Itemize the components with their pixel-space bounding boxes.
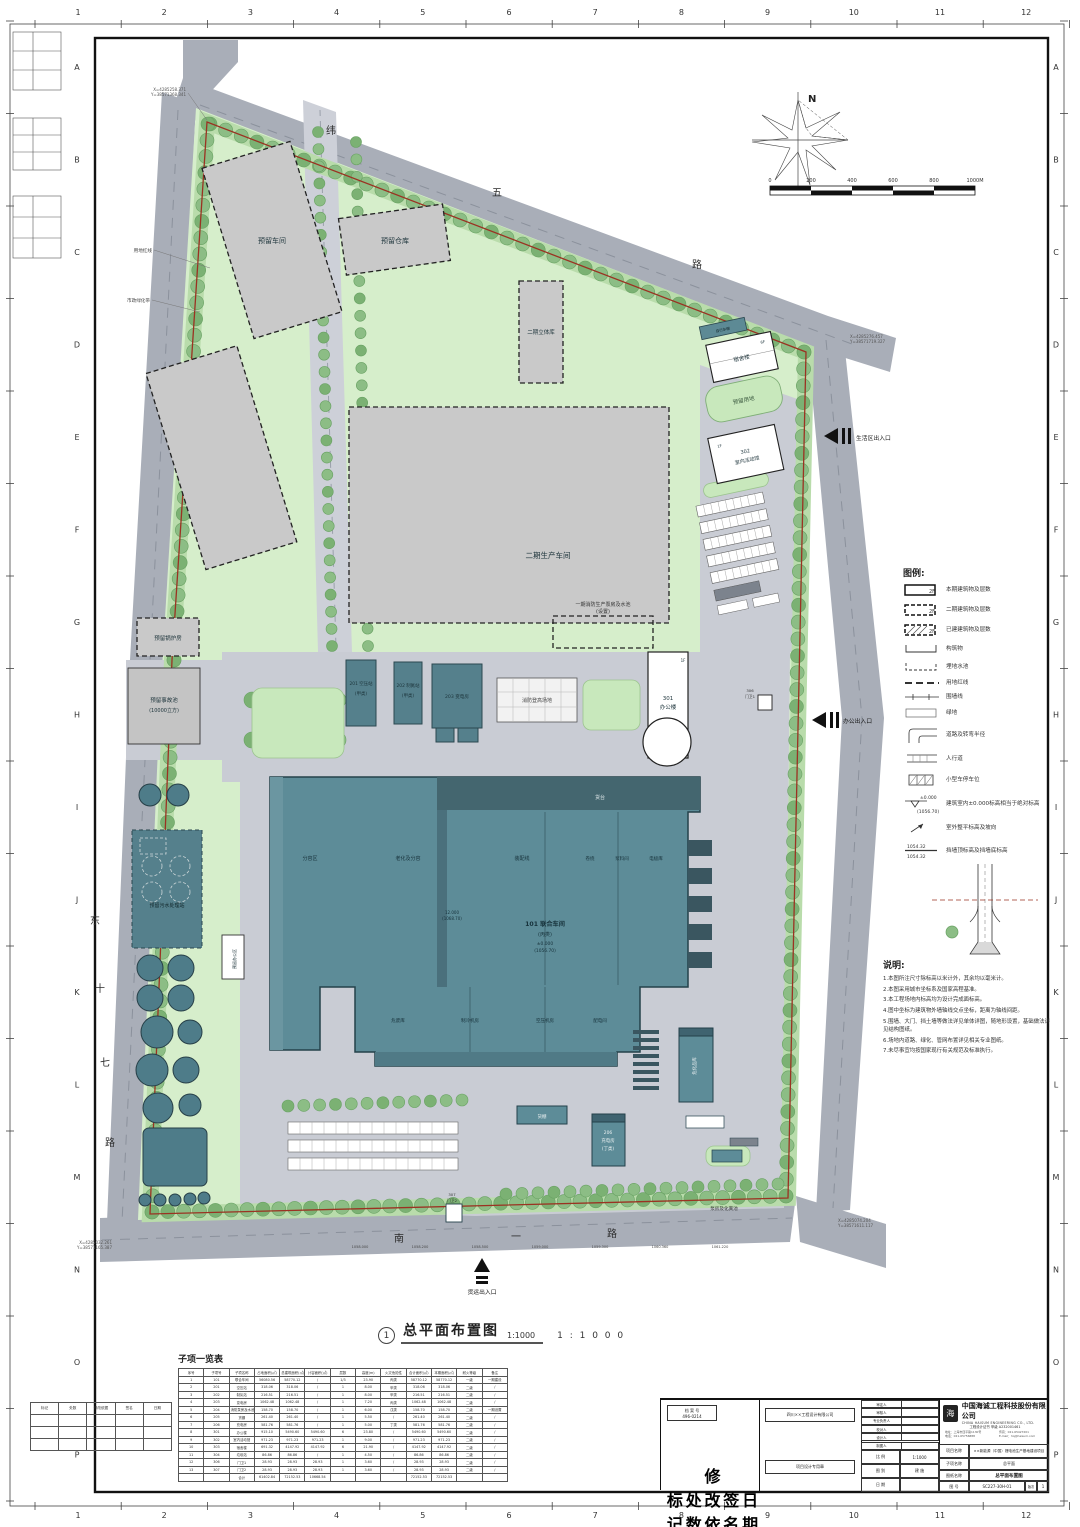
svg-text:M: M — [1053, 1173, 1060, 1182]
revision-table: 标记处数修改依据签名日期 — [30, 1402, 172, 1451]
subitem-row: 11304垃圾站86.8686.86/14.50/86.8686.86二级/ — [179, 1451, 508, 1459]
entrance-office — [812, 712, 839, 728]
svg-text:202 制氮站: 202 制氮站 — [397, 682, 421, 689]
entrance-freight — [474, 1258, 490, 1284]
legend-title: 图例: — [903, 566, 1055, 579]
subitem-row: 4203变电房1062.481062.48/17.20丙类1062.481062… — [179, 1399, 508, 1407]
notes-panel: 说明: 1.本图所注尺寸除标高以米计外，其余均以毫米计。2.本图采用城市坐标系及… — [883, 958, 1053, 1058]
svg-text:C: C — [74, 248, 80, 257]
legend-item: 绿地 — [903, 707, 1055, 719]
svg-text:O: O — [1053, 1358, 1059, 1367]
subitem-table-body: 1101联合车间56080.5658770.12/1/323.90丙类58770… — [179, 1376, 508, 1481]
subitem-row: 合计61402.8472152.5310668.5472152.5372152.… — [179, 1474, 508, 1482]
svg-text:(甲类): (甲类) — [402, 692, 414, 699]
svg-text:E: E — [1053, 433, 1058, 442]
subitem-row: 7206充电房581.76581.76/15.00丁类581.76581.76二… — [179, 1421, 508, 1429]
svg-text:货棚: 货棚 — [538, 1113, 547, 1120]
svg-text:M: M — [74, 1173, 81, 1182]
sign-row: 制图人 — [861, 1442, 939, 1450]
company-logo: 海 — [943, 1405, 958, 1422]
svg-text:门卫1: 门卫1 — [745, 694, 756, 699]
svg-text:1059.000: 1059.000 — [532, 1245, 549, 1249]
svg-text:Y=38571719.327: Y=38571719.327 — [849, 339, 886, 344]
svg-text:307: 307 — [448, 1192, 456, 1197]
svg-text:危化品库: 危化品库 — [691, 1057, 698, 1075]
subitem-table-panel: 子项一览表 序号子项号子项名称占地面积(㎡)总建筑面积(㎡)计容面积(㎡)层数高… — [178, 1352, 508, 1482]
legend-item: 2F 本期建筑物及层数 — [903, 583, 1055, 597]
svg-text:1054.32: 1054.32 — [907, 844, 926, 850]
svg-text:路: 路 — [607, 1227, 617, 1240]
svg-text:301: 301 — [663, 696, 674, 702]
svg-text:L: L — [75, 1081, 80, 1090]
svg-text:Y=38571611.117: Y=38571611.117 — [837, 1223, 874, 1228]
svg-text:预留事故池: 预留事故池 — [150, 696, 178, 704]
svg-text:2: 2 — [162, 8, 167, 17]
svg-text:(1056.70): (1056.70) — [534, 948, 556, 954]
subitem-row: 2201空压站318.06318.06/18.00甲类318.06318.06二… — [179, 1384, 508, 1392]
sewage-station — [132, 830, 202, 948]
sign-row: 审核人 — [861, 1408, 939, 1416]
svg-text:南: 南 — [394, 1232, 404, 1245]
svg-text:Y=38571368.341: Y=38571368.341 — [150, 92, 187, 97]
svg-text:市政绿化带: 市政绿化带 — [127, 297, 150, 304]
svg-text:12.000: 12.000 — [445, 910, 459, 915]
subitem-row: 10303宿舍楼691.324147.924147.92621.90/4147.… — [179, 1444, 508, 1452]
svg-text:(1068.70): (1068.70) — [442, 916, 462, 921]
subitem-row: 6205货棚261.40261.40/15.50/261.40261.40二级/ — [179, 1414, 508, 1422]
legend-item: ±0.000(1056.70) 建筑室内±0.000标高相当于绝对标高 — [903, 793, 1055, 815]
contact-col1: 地址：上海市四平路1130号电话：021-65756888 — [945, 1430, 997, 1439]
svg-text:206: 206 — [604, 1130, 613, 1136]
svg-text:B: B — [1053, 156, 1059, 165]
svg-text:1: 1 — [75, 1511, 80, 1520]
legend-item: 用地红线 — [903, 679, 1055, 687]
svg-text:Y=38571165.387: Y=38571165.387 — [76, 1245, 113, 1250]
dwgname-label: 图纸名称 — [939, 1470, 969, 1481]
north-label: N — [808, 94, 816, 105]
svg-text:(丙类): (丙类) — [538, 931, 552, 938]
svg-text:门卫2: 门卫2 — [447, 1198, 458, 1203]
svg-text:6: 6 — [506, 1511, 511, 1520]
gate-detail-diagram — [930, 862, 1040, 957]
svg-text:11: 11 — [935, 1511, 945, 1520]
svg-text:1000M: 1000M — [966, 178, 983, 184]
drawing-title-row: 1 总平面布置图 1:1000 1 : 1 0 0 0 — [378, 1320, 625, 1344]
svg-text:(甲类): (甲类) — [355, 690, 367, 697]
svg-text:货台: 货台 — [595, 794, 605, 801]
svg-text:(丁类): (丁类) — [602, 1145, 614, 1152]
svg-text:201 空压站: 201 空压站 — [350, 680, 374, 687]
svg-text:路: 路 — [692, 258, 702, 271]
svg-text:2F: 2F — [929, 629, 935, 635]
svg-text:货运出入口: 货运出入口 — [468, 1288, 497, 1296]
type-label: 图 别 — [861, 1464, 900, 1478]
svg-text:4: 4 — [334, 8, 339, 17]
svg-text:1F: 1F — [681, 658, 687, 663]
svg-text:1058.000: 1058.000 — [352, 1245, 369, 1249]
note-item: 6.场地内道路、绿化、管网布置详见相关专业图纸。 — [883, 1037, 1053, 1046]
svg-text:F: F — [75, 526, 80, 535]
svg-text:卷绕: 卷绕 — [586, 855, 595, 862]
contact-col2: 传真：021-65427201E-mail：hq@haisum.com — [999, 1430, 1049, 1439]
svg-text:A: A — [74, 63, 80, 72]
svg-text:充电房: 充电房 — [601, 1137, 615, 1144]
svg-text:11: 11 — [935, 8, 945, 17]
svg-text:1058.500: 1058.500 — [472, 1245, 489, 1249]
svg-text:1058.200: 1058.200 — [412, 1245, 429, 1249]
cert-line: 工程设计证书 甲级 A232001461 — [943, 1424, 1047, 1429]
svg-text:装配线: 装配线 — [514, 855, 529, 862]
notes-title: 说明: — [883, 958, 1053, 971]
legend-item: 道路及转弯半径 — [903, 725, 1055, 745]
svg-text:K: K — [1053, 988, 1059, 997]
drawing-sheet: 112233445566778899101011111212AABBCCDDEE… — [0, 0, 1080, 1527]
svg-text:0: 0 — [768, 178, 771, 184]
svg-text:办公楼: 办公楼 — [660, 703, 677, 711]
subitem-table: 序号子项号子项名称占地面积(㎡)总建筑面积(㎡)计容面积(㎡)层数高度(m)火灾… — [178, 1368, 508, 1482]
svg-text:2: 2 — [162, 1511, 167, 1520]
title-block: 档 案 号496-0214 标记处数修改依据签名日期 四川××工程设计有限公司 … — [660, 1398, 1048, 1490]
legend-panel: 图例: 2F 本期建筑物及层数 2F 二期建筑物及层数 2F 已建建筑物及层数 … — [903, 566, 1055, 867]
type-value: 建 施 — [900, 1464, 939, 1478]
notes-list: 1.本图所注尺寸除标高以米计外，其余均以毫米计。2.本图采用城市坐标系及国家高程… — [883, 975, 1053, 1056]
svg-text:E: E — [74, 433, 79, 442]
svg-text:J: J — [75, 896, 78, 905]
design-stamp-1: 四川××工程设计有限公司 — [765, 1408, 855, 1422]
svg-text:7: 7 — [593, 1511, 598, 1520]
svg-text:6: 6 — [506, 8, 511, 17]
svg-text:1: 1 — [75, 8, 80, 17]
svg-text:预留办公区: 预留办公区 — [231, 949, 237, 969]
svg-text:配电间: 配电间 — [593, 1017, 607, 1024]
svg-text:二期立体库: 二期立体库 — [527, 328, 555, 336]
legend-item: 埋地水池 — [903, 661, 1055, 673]
subitem-row: 5204消防泵房及水池158.70158.70/16.00戊类158.70158… — [179, 1406, 508, 1414]
svg-text:400: 400 — [847, 178, 857, 184]
svg-text:K: K — [74, 988, 80, 997]
svg-text:O: O — [74, 1358, 80, 1367]
drawing-scale-small: 1:1000 — [507, 1331, 535, 1340]
project-label: 项目名称 — [939, 1444, 969, 1458]
svg-text:8: 8 — [679, 8, 684, 17]
svg-text:预留污水处理站: 预留污水处理站 — [149, 902, 184, 909]
accident-pool — [128, 668, 200, 744]
svg-text:老化及分容: 老化及分容 — [395, 855, 420, 862]
svg-text:7: 7 — [593, 8, 598, 17]
archive-no-box: 档 案 号496-0214 — [667, 1405, 717, 1421]
subitem-row: 1101联合车间56080.5658770.12/1/323.90丙类58770… — [179, 1376, 508, 1384]
dwgno-value: SC227-30H-01 — [969, 1481, 1025, 1492]
svg-text:12: 12 — [1021, 1511, 1031, 1520]
sign-row: 校对人 — [861, 1425, 939, 1433]
subitem-row: 13307门卫228.9328.9328.9313.60/28.9328.93二… — [179, 1466, 508, 1474]
svg-text:±0.000: ±0.000 — [537, 941, 553, 947]
svg-text:L: L — [1054, 1081, 1059, 1090]
svg-text:五: 五 — [492, 188, 502, 199]
subproject-label: 子项名称 — [939, 1458, 969, 1470]
svg-text:分容区: 分容区 — [302, 855, 317, 862]
svg-text:203 变电房: 203 变电房 — [445, 693, 469, 700]
dwgno-label: 图 号 — [939, 1481, 969, 1492]
subitem-row: 8301办公楼915.105490.605490.60623.80/5490.6… — [179, 1429, 508, 1437]
svg-text:东: 东 — [90, 914, 100, 927]
drawing-scale-large: 1 : 1 0 0 0 — [557, 1331, 625, 1344]
svg-text:101 联合车间: 101 联合车间 — [525, 920, 565, 928]
svg-text:12: 12 — [1021, 8, 1031, 17]
svg-text:P: P — [1054, 1451, 1059, 1460]
note-item: 7.未尽事宜均按国家现行有关规范及标准执行。 — [883, 1047, 1053, 1056]
svg-text:2F: 2F — [929, 589, 935, 595]
signature-rows: 审定人审核人专业负责人校对人设计人制图人 — [861, 1400, 939, 1450]
svg-text:制冷机房: 制冷机房 — [461, 1017, 479, 1024]
margin-signature-boxes — [13, 32, 61, 258]
svg-text:D: D — [74, 341, 80, 350]
svg-text:(10000立方): (10000立方) — [149, 707, 179, 714]
svg-text:5: 5 — [420, 8, 425, 17]
svg-text:9: 9 — [765, 8, 770, 17]
svg-text:±0.000: ±0.000 — [920, 795, 937, 801]
svg-text:10: 10 — [849, 8, 859, 17]
sign-row: 审定人 — [861, 1400, 939, 1408]
svg-text:4: 4 — [334, 1511, 339, 1520]
svg-text:纬: 纬 — [326, 124, 336, 137]
svg-text:(1056.70): (1056.70) — [917, 809, 939, 815]
svg-text:J: J — [1054, 896, 1057, 905]
svg-text:P: P — [75, 1451, 80, 1460]
legend-item: 2F 二期建筑物及层数 — [903, 603, 1055, 617]
svg-text:9: 9 — [765, 1511, 770, 1520]
svg-text:1061.220: 1061.220 — [712, 1245, 729, 1249]
svg-text:306: 306 — [746, 688, 754, 693]
svg-text:1054.32: 1054.32 — [907, 854, 926, 860]
svg-text:浆料间: 浆料间 — [615, 855, 629, 862]
svg-text:200: 200 — [806, 178, 816, 184]
scale-value: 1:1000 — [900, 1450, 939, 1464]
svg-text:3: 3 — [248, 8, 253, 17]
north-wind-rose — [752, 92, 848, 188]
svg-text:I: I — [1055, 803, 1057, 812]
subitem-table-title: 子项一览表 — [178, 1352, 508, 1365]
svg-text:2F: 2F — [929, 609, 935, 615]
svg-text:N: N — [74, 1266, 80, 1275]
svg-text:3: 3 — [248, 1511, 253, 1520]
note-item: 3.本工程场地内标高均为设计完成面标高。 — [883, 996, 1053, 1005]
dwgname-value: 总平面布置图 — [969, 1470, 1049, 1481]
note-item: 4.图中坐标为建筑物外墙轴线交点坐标，距离为轴线间距。 — [883, 1007, 1053, 1016]
company-header: 海 中国海诚工程科技股份有限公司 CHINA HAISUM ENGINEERIN… — [943, 1403, 1047, 1423]
legend-item: 小型车停车位 — [903, 773, 1055, 787]
legend-item: 围墙线 — [903, 693, 1055, 701]
svg-text:N: N — [1053, 1266, 1059, 1275]
svg-text:办公出入口: 办公出入口 — [843, 717, 872, 725]
svg-text:预留仓库: 预留仓库 — [381, 236, 409, 245]
legend-item: 人行道 — [903, 751, 1055, 767]
svg-text:(设置): (设置) — [596, 608, 610, 615]
svg-text:G: G — [74, 618, 80, 627]
subproject-value: 总平面 — [969, 1458, 1049, 1470]
project-value: ××新能源（中国）锂电池生产基地建设项目 — [969, 1444, 1049, 1458]
svg-text:1060.360: 1060.360 — [652, 1245, 669, 1249]
subitem-row: 3202制氮站216.51216.51/18.00甲类216.51216.51二… — [179, 1391, 508, 1399]
svg-text:一: 一 — [511, 1232, 521, 1243]
legend-item: 1054.321054.32 挡墙顶标高及挡墙底标高 — [903, 841, 1055, 861]
svg-text:电极库: 电极库 — [649, 855, 663, 862]
scale-bar: 02004006008001000M — [768, 178, 983, 195]
svg-text:5: 5 — [420, 1511, 425, 1520]
svg-text:1059.300: 1059.300 — [592, 1245, 609, 1249]
subitem-row: 9302室内活动馆971.23971.23971.2319.00/971.239… — [179, 1436, 508, 1444]
titleblock-minigrid: 标记处数修改依据签名日期 — [665, 1462, 760, 1527]
svg-text:路: 路 — [105, 1136, 115, 1149]
legend-item: 室外整平标高及坡向 — [903, 821, 1055, 835]
rev-value: 1 — [1037, 1481, 1049, 1492]
detail-number-bubble: 1 — [378, 1327, 395, 1344]
svg-text:I: I — [76, 803, 78, 812]
svg-text:空压机房: 空压机房 — [536, 1017, 554, 1024]
date-label: 日 期 — [861, 1478, 900, 1492]
rev-label: 版次 — [1025, 1481, 1037, 1492]
company-name-cn: 中国海诚工程科技股份有限公司 — [962, 1401, 1047, 1421]
svg-text:F: F — [1054, 526, 1059, 535]
subitem-row: 12306门卫128.9328.9328.9313.60/28.9328.93二… — [179, 1459, 508, 1467]
svg-text:七: 七 — [100, 1057, 110, 1069]
svg-text:二期生产车间: 二期生产车间 — [526, 550, 571, 560]
note-item: 1.本图所注尺寸除标高以米计外，其余均以毫米计。 — [883, 975, 1053, 984]
svg-text:消防登高场地: 消防登高场地 — [522, 697, 552, 704]
svg-text:D: D — [1053, 341, 1059, 350]
legend-item: 2F 已建建筑物及层数 — [903, 623, 1055, 637]
svg-text:10: 10 — [849, 1511, 859, 1520]
svg-text:B: B — [74, 156, 80, 165]
svg-text:一期消防生产泵房及水池: 一期消防生产泵房及水池 — [575, 601, 630, 608]
design-stamp-2: 项目设计专用章 — [765, 1460, 855, 1474]
svg-text:C: C — [1053, 248, 1059, 257]
svg-text:预留锅炉房: 预留锅炉房 — [154, 634, 182, 642]
svg-text:泵房及化粪池: 泵房及化粪池 — [710, 1205, 738, 1212]
date-value — [900, 1478, 939, 1492]
svg-text:十: 十 — [95, 982, 105, 995]
svg-text:600: 600 — [888, 178, 898, 184]
svg-text:预留车间: 预留车间 — [258, 236, 286, 245]
svg-text:用地红线: 用地红线 — [134, 247, 153, 254]
drawing-title-text: 总平面布置图 — [403, 1320, 499, 1340]
svg-text:H: H — [74, 711, 80, 720]
scale-label: 比 例 — [861, 1450, 900, 1464]
svg-text:A: A — [1053, 63, 1059, 72]
svg-text:危废库: 危废库 — [391, 1017, 405, 1024]
svg-text:800: 800 — [929, 178, 939, 184]
sign-row: 设计人 — [861, 1433, 939, 1441]
svg-text:生活区出入口: 生活区出入口 — [856, 434, 891, 442]
bottom-parking — [288, 1122, 458, 1170]
legend-item: 构筑物 — [903, 643, 1055, 655]
note-item: 5.围墙、大门、挡土墙等做法详见单体详图，随地形设置，基础做法详见结构图纸。 — [883, 1018, 1053, 1035]
sign-row: 专业负责人 — [861, 1417, 939, 1425]
note-item: 2.本图采用城市坐标系及国家高程基准。 — [883, 986, 1053, 995]
